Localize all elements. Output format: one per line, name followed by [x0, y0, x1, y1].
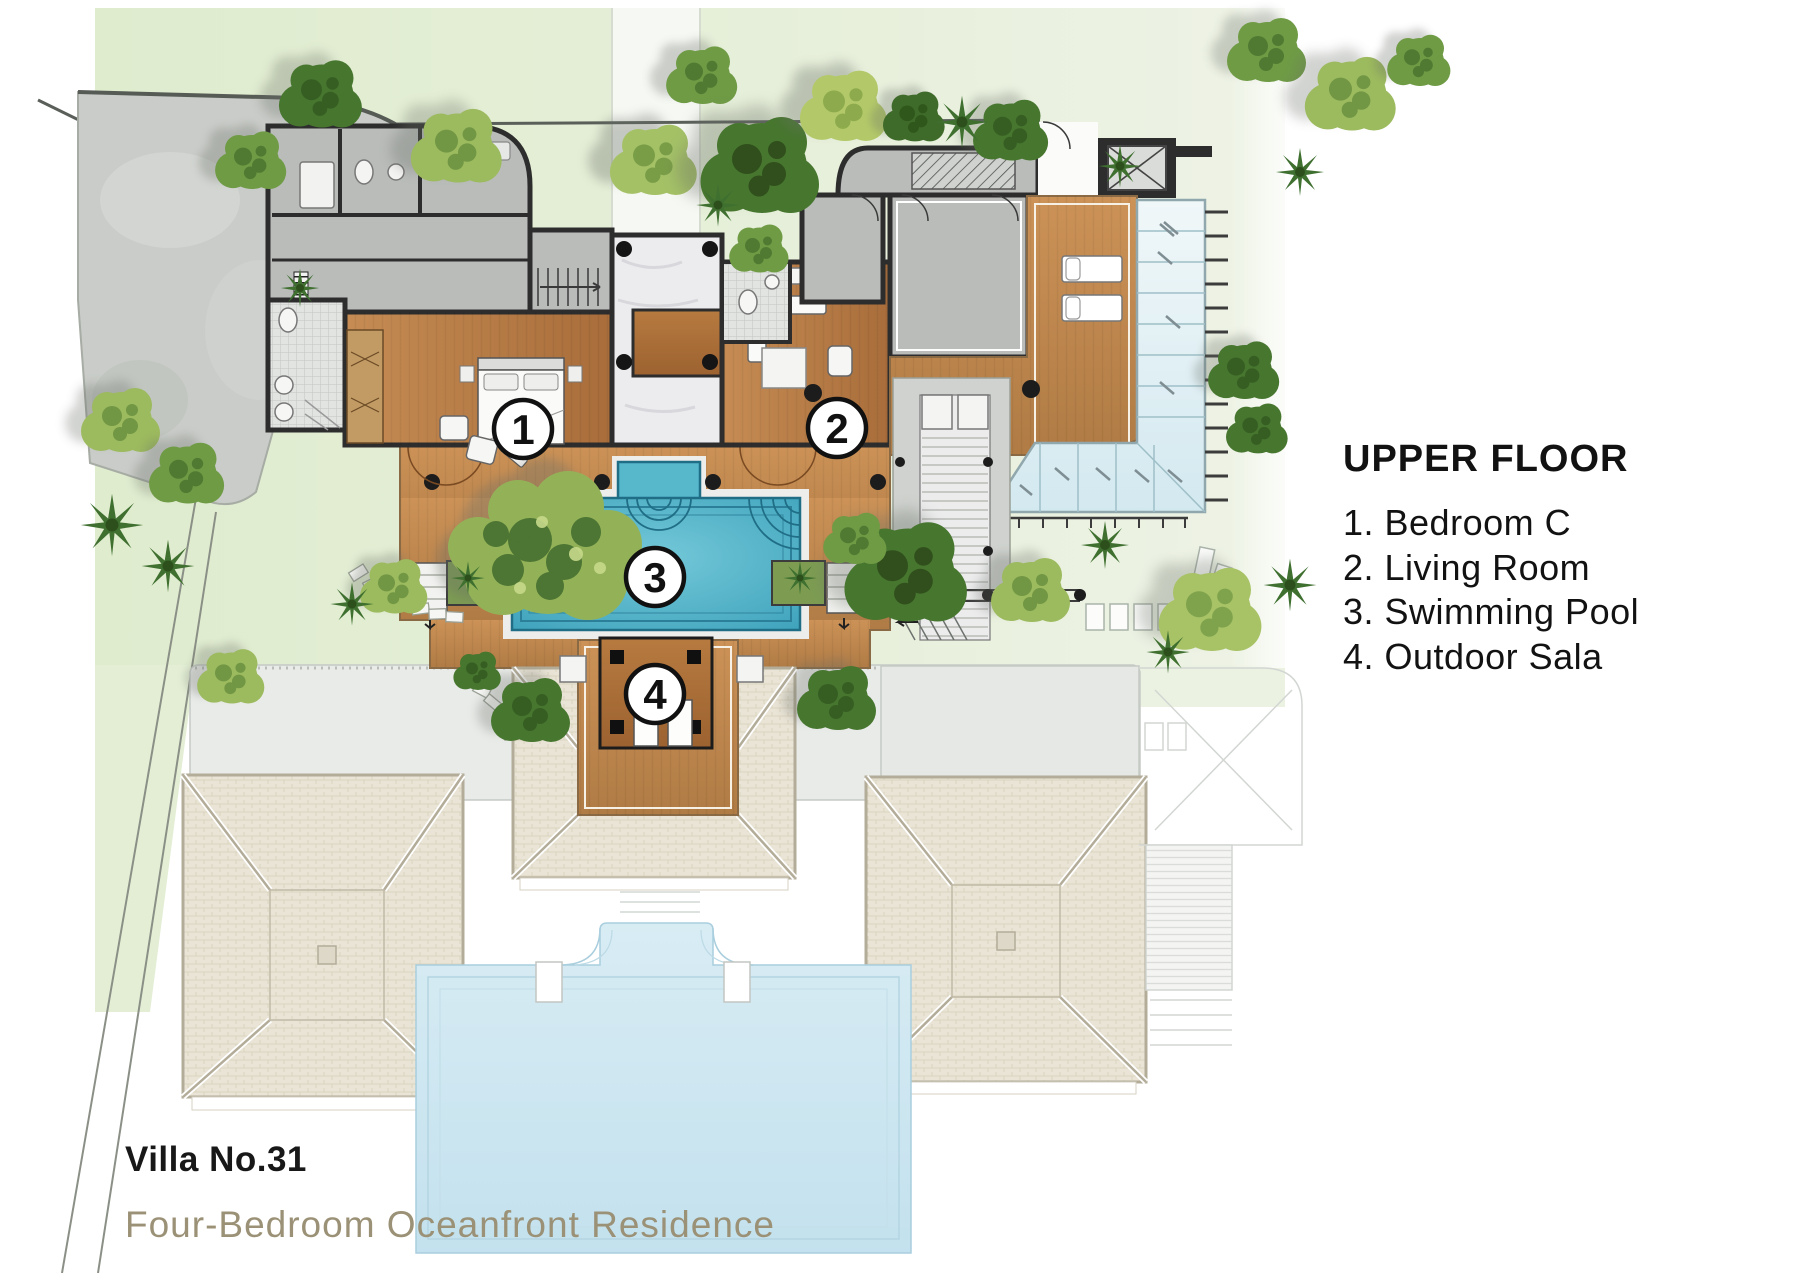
- floor-plan-page: 1 2 3 4 UPPER FLOOR 1. Bedroom C 2. Livi…: [0, 0, 1800, 1273]
- closet: [347, 330, 383, 443]
- flat-roof: [890, 195, 1028, 357]
- svg-text:3: 3: [643, 554, 666, 601]
- bedroomC-bathroom: [268, 300, 345, 430]
- room-marker-1: 1: [494, 400, 552, 458]
- toilet-fixture: [279, 308, 297, 332]
- villa-subtitle: Four-Bedroom Oceanfront Residence: [125, 1204, 775, 1246]
- svg-text:2: 2: [825, 405, 848, 452]
- louvre-roof: [912, 153, 1015, 189]
- legend: UPPER FLOOR 1. Bedroom C 2. Living Room …: [1343, 438, 1639, 679]
- room-marker-2: 2: [808, 399, 866, 457]
- side-walk-gap: [1038, 122, 1098, 198]
- svg-text:1: 1: [511, 406, 534, 453]
- svg-text:4: 4: [643, 671, 667, 718]
- armchair: [828, 346, 852, 376]
- powder-room: [722, 262, 790, 342]
- legend-item-living-room: 2. Living Room: [1343, 546, 1639, 591]
- bedroomC: [345, 312, 612, 468]
- sink-fixture: [765, 275, 779, 289]
- legend-title: UPPER FLOOR: [1343, 438, 1639, 481]
- legend-item-bedroom-c: 1. Bedroom C: [1343, 501, 1639, 546]
- sink-fixture: [275, 376, 293, 394]
- armchair: [440, 416, 468, 440]
- entry-foyer: [612, 235, 722, 445]
- legend-item-outdoor-sala: 4. Outdoor Sala: [1343, 635, 1639, 680]
- coffee-table: [762, 348, 806, 388]
- room-marker-4: 4: [626, 665, 684, 723]
- toilet-fixture: [355, 160, 373, 184]
- room-marker-3: 3: [626, 548, 684, 606]
- staff-bed: [300, 162, 334, 208]
- sink-fixture: [275, 403, 293, 421]
- footer-captions: Villa No.31 Four-Bedroom Oceanfront Resi…: [125, 1140, 775, 1246]
- legend-item-swimming-pool: 3. Swimming Pool: [1343, 590, 1639, 635]
- toilet-fixture: [739, 290, 757, 314]
- lower-terrace-ghost: [1139, 668, 1302, 1045]
- villa-title: Villa No.31: [125, 1140, 775, 1180]
